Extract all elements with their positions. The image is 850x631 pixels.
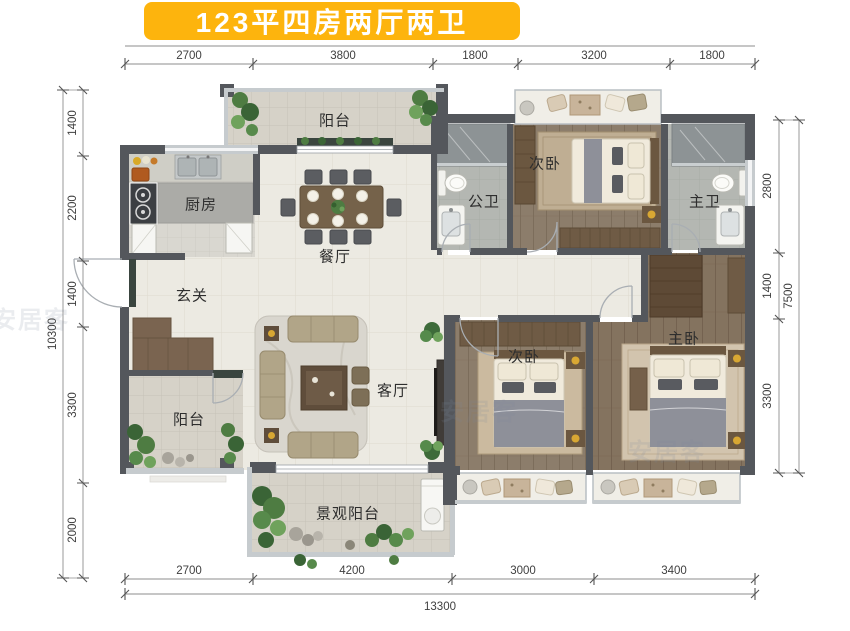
dim-right-1: 2800 [762,173,774,199]
dim-bottom-1: 2700 [176,565,202,577]
dim-left-4: 3300 [67,392,79,418]
page-title: 123平四房两厅两卫 [196,1,469,41]
room-label-entry: 玄关 [176,285,208,306]
floorplan-page: 123平四房两厅两卫 [0,0,850,631]
dim-bottom-2: 4200 [339,565,365,577]
dim-top-2: 3800 [330,50,356,62]
dim-right-3: 3300 [762,383,774,409]
dim-left-5: 2000 [67,517,79,543]
room-label-balcony-view: 景观阳台 [316,503,380,524]
dim-left-2: 2200 [67,195,79,221]
room-label-living: 客厅 [377,380,409,401]
dim-bottom-total: 13300 [424,601,456,613]
dim-top-1: 2700 [176,50,202,62]
room-label-kitchen: 厨房 [185,194,217,215]
watermark-text: 安居客 [628,432,706,467]
watermark-text: 安居客 [0,300,70,335]
room-label-bedroom-top: 次卧 [529,153,561,174]
watermark-text: 安居客 [440,392,518,427]
room-label-bedroom-second: 次卧 [508,346,540,367]
dim-bottom-4: 3400 [661,565,687,577]
room-label-balcony-top: 阳台 [319,110,351,131]
room-label-master-bath: 主卫 [689,191,721,212]
room-label-balcony-left: 阳台 [173,409,205,430]
dim-top-3: 1800 [462,50,488,62]
room-label-master-bedroom: 主卧 [668,328,700,349]
dim-bottom-3: 3000 [510,565,536,577]
room-label-dining: 餐厅 [319,246,351,267]
dim-right-2: 1400 [762,273,774,299]
title-banner: 123平四房两厅两卫 [144,2,520,40]
floorplan-drawing [0,0,850,631]
dim-left-1: 1400 [67,110,79,136]
room-label-public-bath: 公卫 [468,191,500,212]
dim-top-5: 1800 [699,50,725,62]
dim-top-4: 3200 [581,50,607,62]
dim-right-total: 7500 [783,283,795,309]
